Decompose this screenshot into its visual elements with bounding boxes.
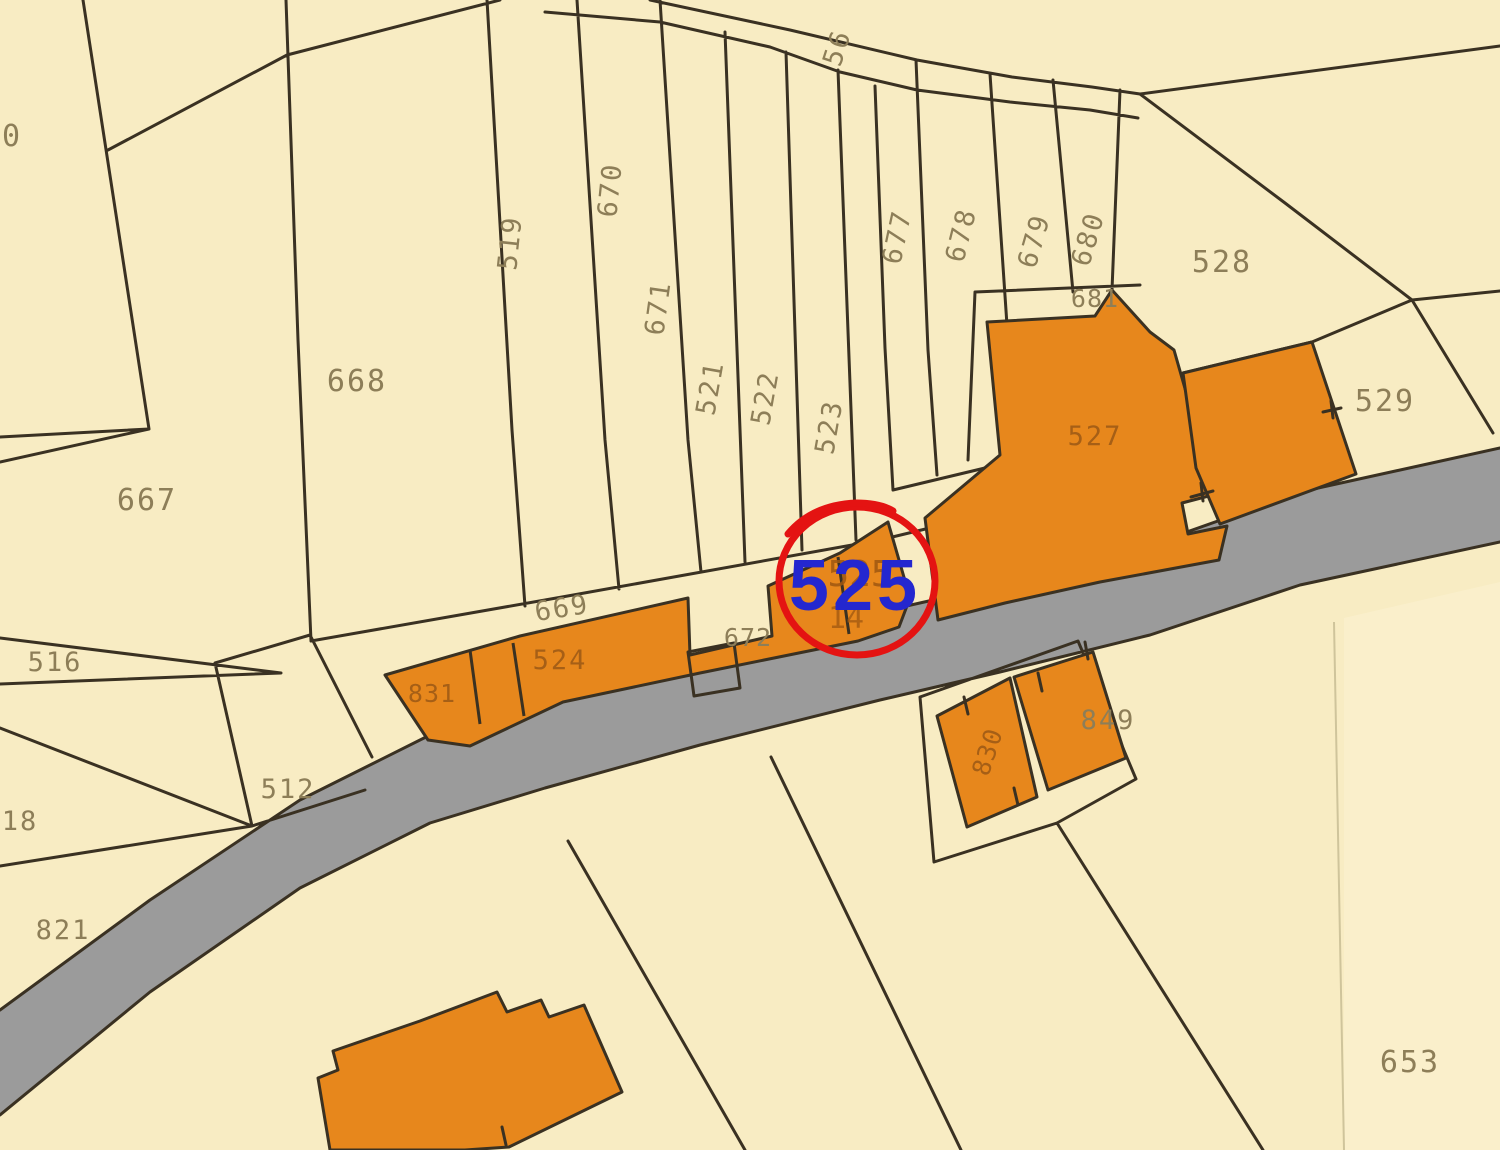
parcel-label-516: 516 — [28, 647, 83, 678]
parcel-label-681: 681 — [1071, 284, 1119, 313]
parcel-label-821: 821 — [36, 915, 91, 946]
parcel-label-667: 667 — [117, 483, 177, 518]
parcel-label-849: 849 — [1081, 705, 1136, 736]
parcel-label-831: 831 — [408, 679, 456, 708]
parcel-label-672: 672 — [724, 623, 772, 652]
parcel-label-510: 510 — [0, 119, 22, 154]
parcel-label-670: 670 — [592, 161, 629, 219]
parcel-label-527: 527 — [1068, 421, 1123, 452]
highlighted-parcel-number[interactable]: 525 — [789, 546, 921, 626]
map-canvas: 510 668 667 519 670 671 521 522 523 56 6… — [0, 0, 1500, 1150]
parcel-label-528: 528 — [1192, 245, 1252, 280]
parcel-label-529: 529 — [1355, 384, 1415, 419]
parcel-label-519: 519 — [492, 214, 529, 272]
parcel-label-518: 18 — [2, 806, 39, 837]
parcel-label-653: 653 — [1380, 1045, 1440, 1080]
parcel-label-668: 668 — [327, 364, 387, 399]
parcel-label-524: 524 — [533, 645, 588, 676]
parcel-label-512: 512 — [261, 774, 316, 805]
cadastral-map: 510 668 667 519 670 671 521 522 523 56 6… — [0, 0, 1500, 1150]
